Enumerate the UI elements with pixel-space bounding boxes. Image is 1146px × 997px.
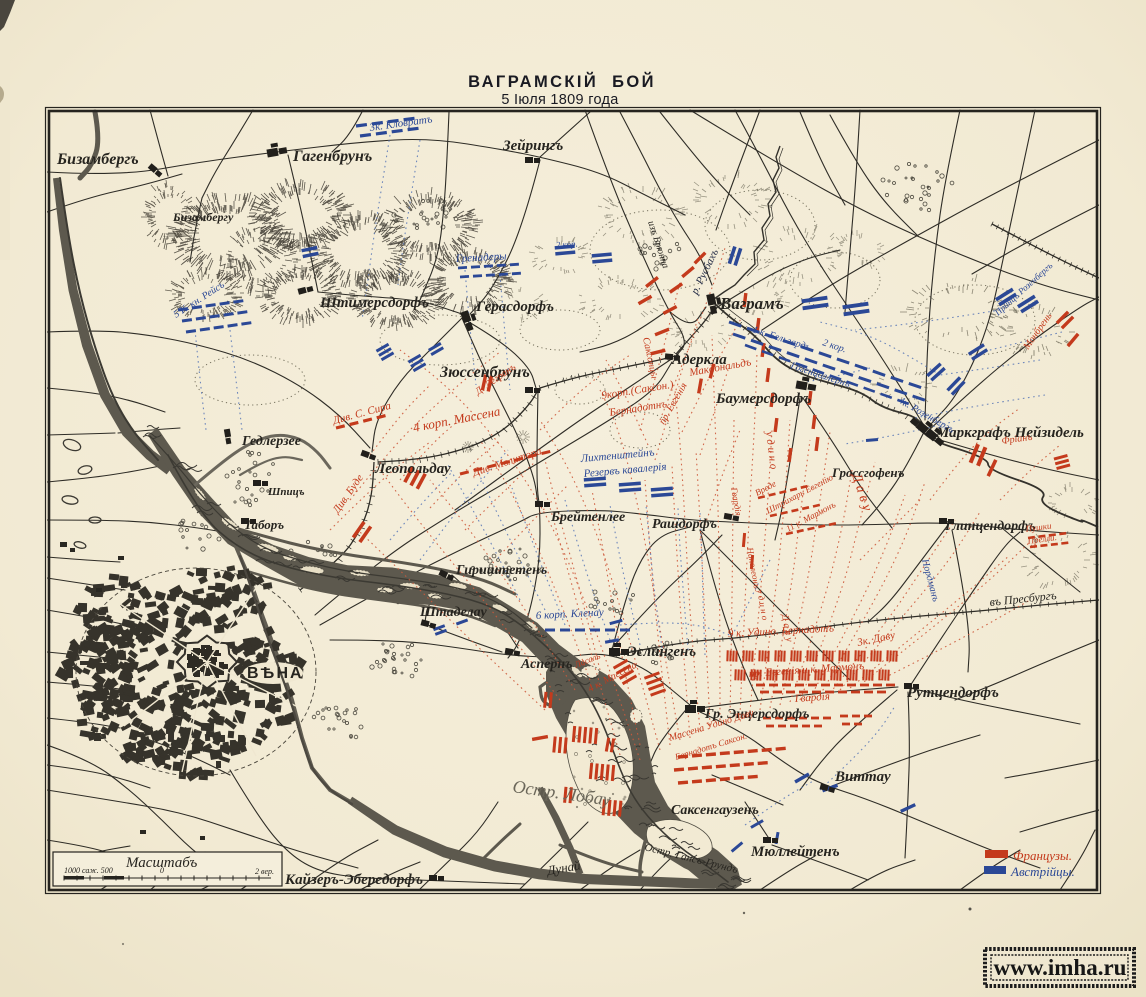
svg-text:Гвардія: Гвардія <box>793 691 830 705</box>
svg-text:Брейтенлее: Брейтенлее <box>550 510 625 525</box>
svg-text:Французы.: Французы. <box>1013 848 1072 863</box>
svg-text:2 вер.: 2 вер. <box>255 867 274 876</box>
svg-text:2 кор.: 2 кор. <box>555 238 578 250</box>
svg-text:Саксенгаузенъ: Саксенгаузенъ <box>671 803 759 818</box>
svg-text:www.imha.ru: www.imha.ru <box>994 955 1127 980</box>
svg-text:Гириштетенъ: Гириштетенъ <box>455 563 547 578</box>
svg-text:Шпицъ: Шпицъ <box>267 486 305 498</box>
svg-text:Бизамбергу: Бизамбергу <box>172 210 234 224</box>
svg-text:Зюссенбрунъ: Зюссенбрунъ <box>439 364 530 381</box>
svg-text:Рутцендорфъ: Рутцендорфъ <box>907 685 999 701</box>
svg-text:Зейрингъ: Зейрингъ <box>502 138 563 154</box>
svg-text:Баумерсдорфъ: Баумерсдорфъ <box>715 391 811 407</box>
svg-text:1000 саж. 500: 1000 саж. 500 <box>64 866 113 875</box>
svg-text:Герасдорфъ: Герасдорфъ <box>475 299 554 315</box>
svg-text:Виттау: Виттау <box>834 769 891 785</box>
svg-text:Австрійцы.: Австрійцы. <box>1010 864 1075 879</box>
svg-text:Бизамбергъ: Бизамбергъ <box>56 151 139 168</box>
svg-text:Штаделау: Штаделау <box>419 605 487 620</box>
svg-text:Кайзеръ-Эберсдорфъ: Кайзеръ-Эберсдорфъ <box>284 872 423 888</box>
svg-text:ВѢНА: ВѢНА <box>247 665 304 682</box>
svg-text:Ваграмъ: Ваграмъ <box>719 294 784 313</box>
svg-text:Аспернъ: Аспернъ <box>520 657 573 672</box>
svg-text:Леопольдау: Леопольдау <box>374 461 451 477</box>
svg-text:Эслингенъ: Эслингенъ <box>627 644 696 660</box>
svg-text:ВАГРАМСКІЙ БОЙ: ВАГРАМСКІЙ БОЙ <box>468 72 656 91</box>
svg-text:Глинцендорфъ: Глинцендорфъ <box>944 519 1036 534</box>
svg-text:5 Іюля 1809 года: 5 Іюля 1809 года <box>501 92 619 108</box>
svg-text:Гедлерзее: Гедлерзее <box>241 434 301 449</box>
svg-text:0: 0 <box>160 866 164 875</box>
svg-text:Рашдорфъ: Рашдорфъ <box>652 517 717 532</box>
svg-text:Таборъ: Таборъ <box>244 517 284 532</box>
svg-text:Гагенбрунъ: Гагенбрунъ <box>292 148 372 165</box>
svg-text:Штимерсдорфъ: Штимерсдорфъ <box>319 295 429 311</box>
svg-text:Мюллейтенъ: Мюллейтенъ <box>750 844 840 860</box>
svg-text:Гроссгофенъ: Гроссгофенъ <box>831 465 905 480</box>
